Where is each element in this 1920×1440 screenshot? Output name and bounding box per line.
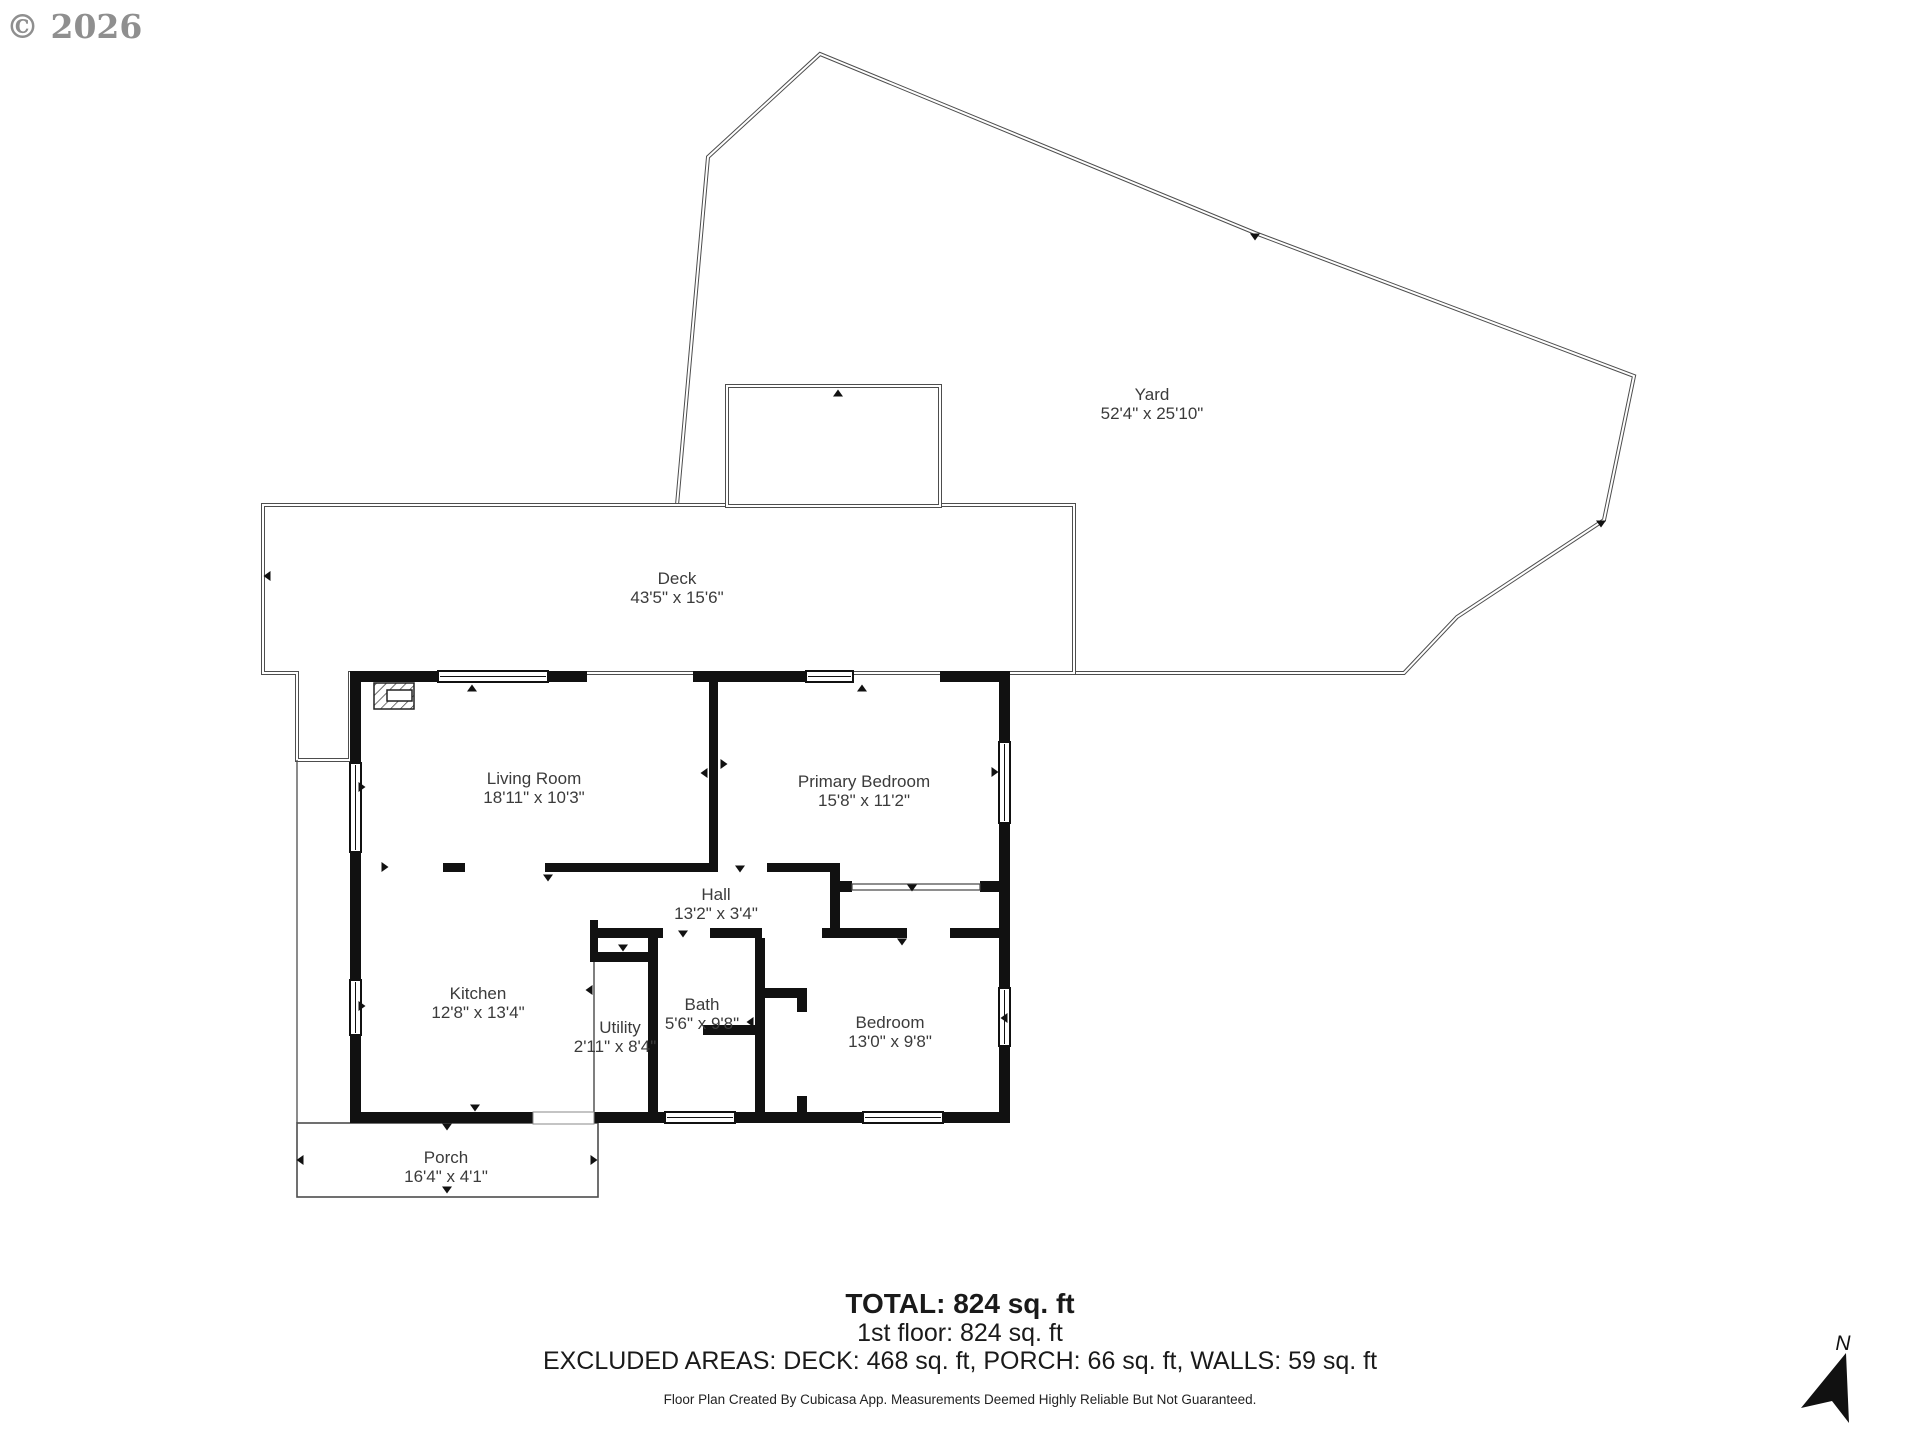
hall-label: Hall — [701, 885, 730, 904]
door-arrow-icon — [857, 685, 867, 692]
porch-label: Porch — [424, 1148, 468, 1167]
porch-entry-door — [533, 1112, 594, 1124]
living-room-dims: 18'11" x 10'3" — [483, 788, 584, 807]
first-floor-area-text: 1st floor: 824 sq. ft — [857, 1319, 1063, 1347]
fireplace — [374, 683, 414, 709]
excluded-areas-text: EXCLUDED AREAS: DECK: 468 sq. ft, PORCH:… — [543, 1347, 1377, 1375]
utility-dims: 2'11" x 8'4" — [574, 1037, 657, 1056]
door-arrow-icon — [586, 985, 593, 995]
window-living-top — [438, 671, 548, 682]
total-area-text: TOTAL: 824 sq. ft — [845, 1288, 1074, 1319]
door-arrow-icon — [678, 931, 688, 938]
living-room-label: Living Room — [487, 769, 582, 788]
bedroom-dims: 13'0" x 9'8" — [848, 1032, 932, 1051]
yard-label: Yard — [1135, 385, 1170, 404]
window-bedroom-bottom — [863, 1112, 943, 1123]
bath-dims: 5'6" x 9'8" — [665, 1014, 739, 1033]
primary-bedroom-dims: 15'8" x 11'2" — [818, 791, 910, 810]
windows — [350, 671, 1010, 1123]
yard-dims: 52'4" x 25'10" — [1101, 404, 1204, 423]
porch-dims: 16'4" x 4'1" — [404, 1167, 488, 1186]
door-arrow-icon — [735, 866, 745, 873]
bedroom-label: Bedroom — [856, 1013, 925, 1032]
door-arrow-icon — [382, 862, 389, 872]
deck-dims: 43'5" x 15'6" — [630, 588, 723, 607]
door-arrow-icon — [470, 1105, 480, 1112]
deck-label: Deck — [658, 569, 697, 588]
door-arrow-icon — [467, 685, 477, 692]
copyright-watermark: © 2026 — [6, 7, 142, 46]
window-primary-top — [806, 671, 853, 682]
door-arrow-icon — [701, 768, 708, 778]
kitchen-label: Kitchen — [450, 984, 507, 1003]
window-primary-right — [999, 742, 1010, 823]
door-arrow-icon — [543, 875, 553, 882]
house-walls — [350, 671, 1010, 1123]
window-bath-bottom — [665, 1112, 735, 1123]
primary-bedroom-label: Primary Bedroom — [798, 772, 930, 791]
north-indicator: N — [1801, 1332, 1851, 1423]
footer-summary: TOTAL: 824 sq. ft 1st floor: 824 sq. ft … — [543, 1288, 1377, 1407]
floor-plan-canvas: Yard 52'4" x 25'10" Deck 43'5" x 15'6" L… — [0, 0, 1920, 1440]
door-arrow-icon — [618, 945, 628, 952]
north-label: N — [1835, 1332, 1851, 1355]
hall-dims: 13'2" x 3'4" — [674, 904, 758, 923]
door-arrow-icon — [992, 767, 999, 777]
disclaimer-text: Floor Plan Created By Cubicasa App. Meas… — [664, 1392, 1257, 1407]
utility-label: Utility — [599, 1018, 641, 1037]
door-arrow-icon — [721, 759, 728, 769]
bath-label: Bath — [685, 995, 720, 1014]
door-arrow-icon — [897, 939, 907, 946]
kitchen-dims: 12'8" x 13'4" — [431, 1003, 524, 1022]
window-living-left — [350, 763, 361, 852]
north-arrow-icon — [1801, 1353, 1849, 1423]
